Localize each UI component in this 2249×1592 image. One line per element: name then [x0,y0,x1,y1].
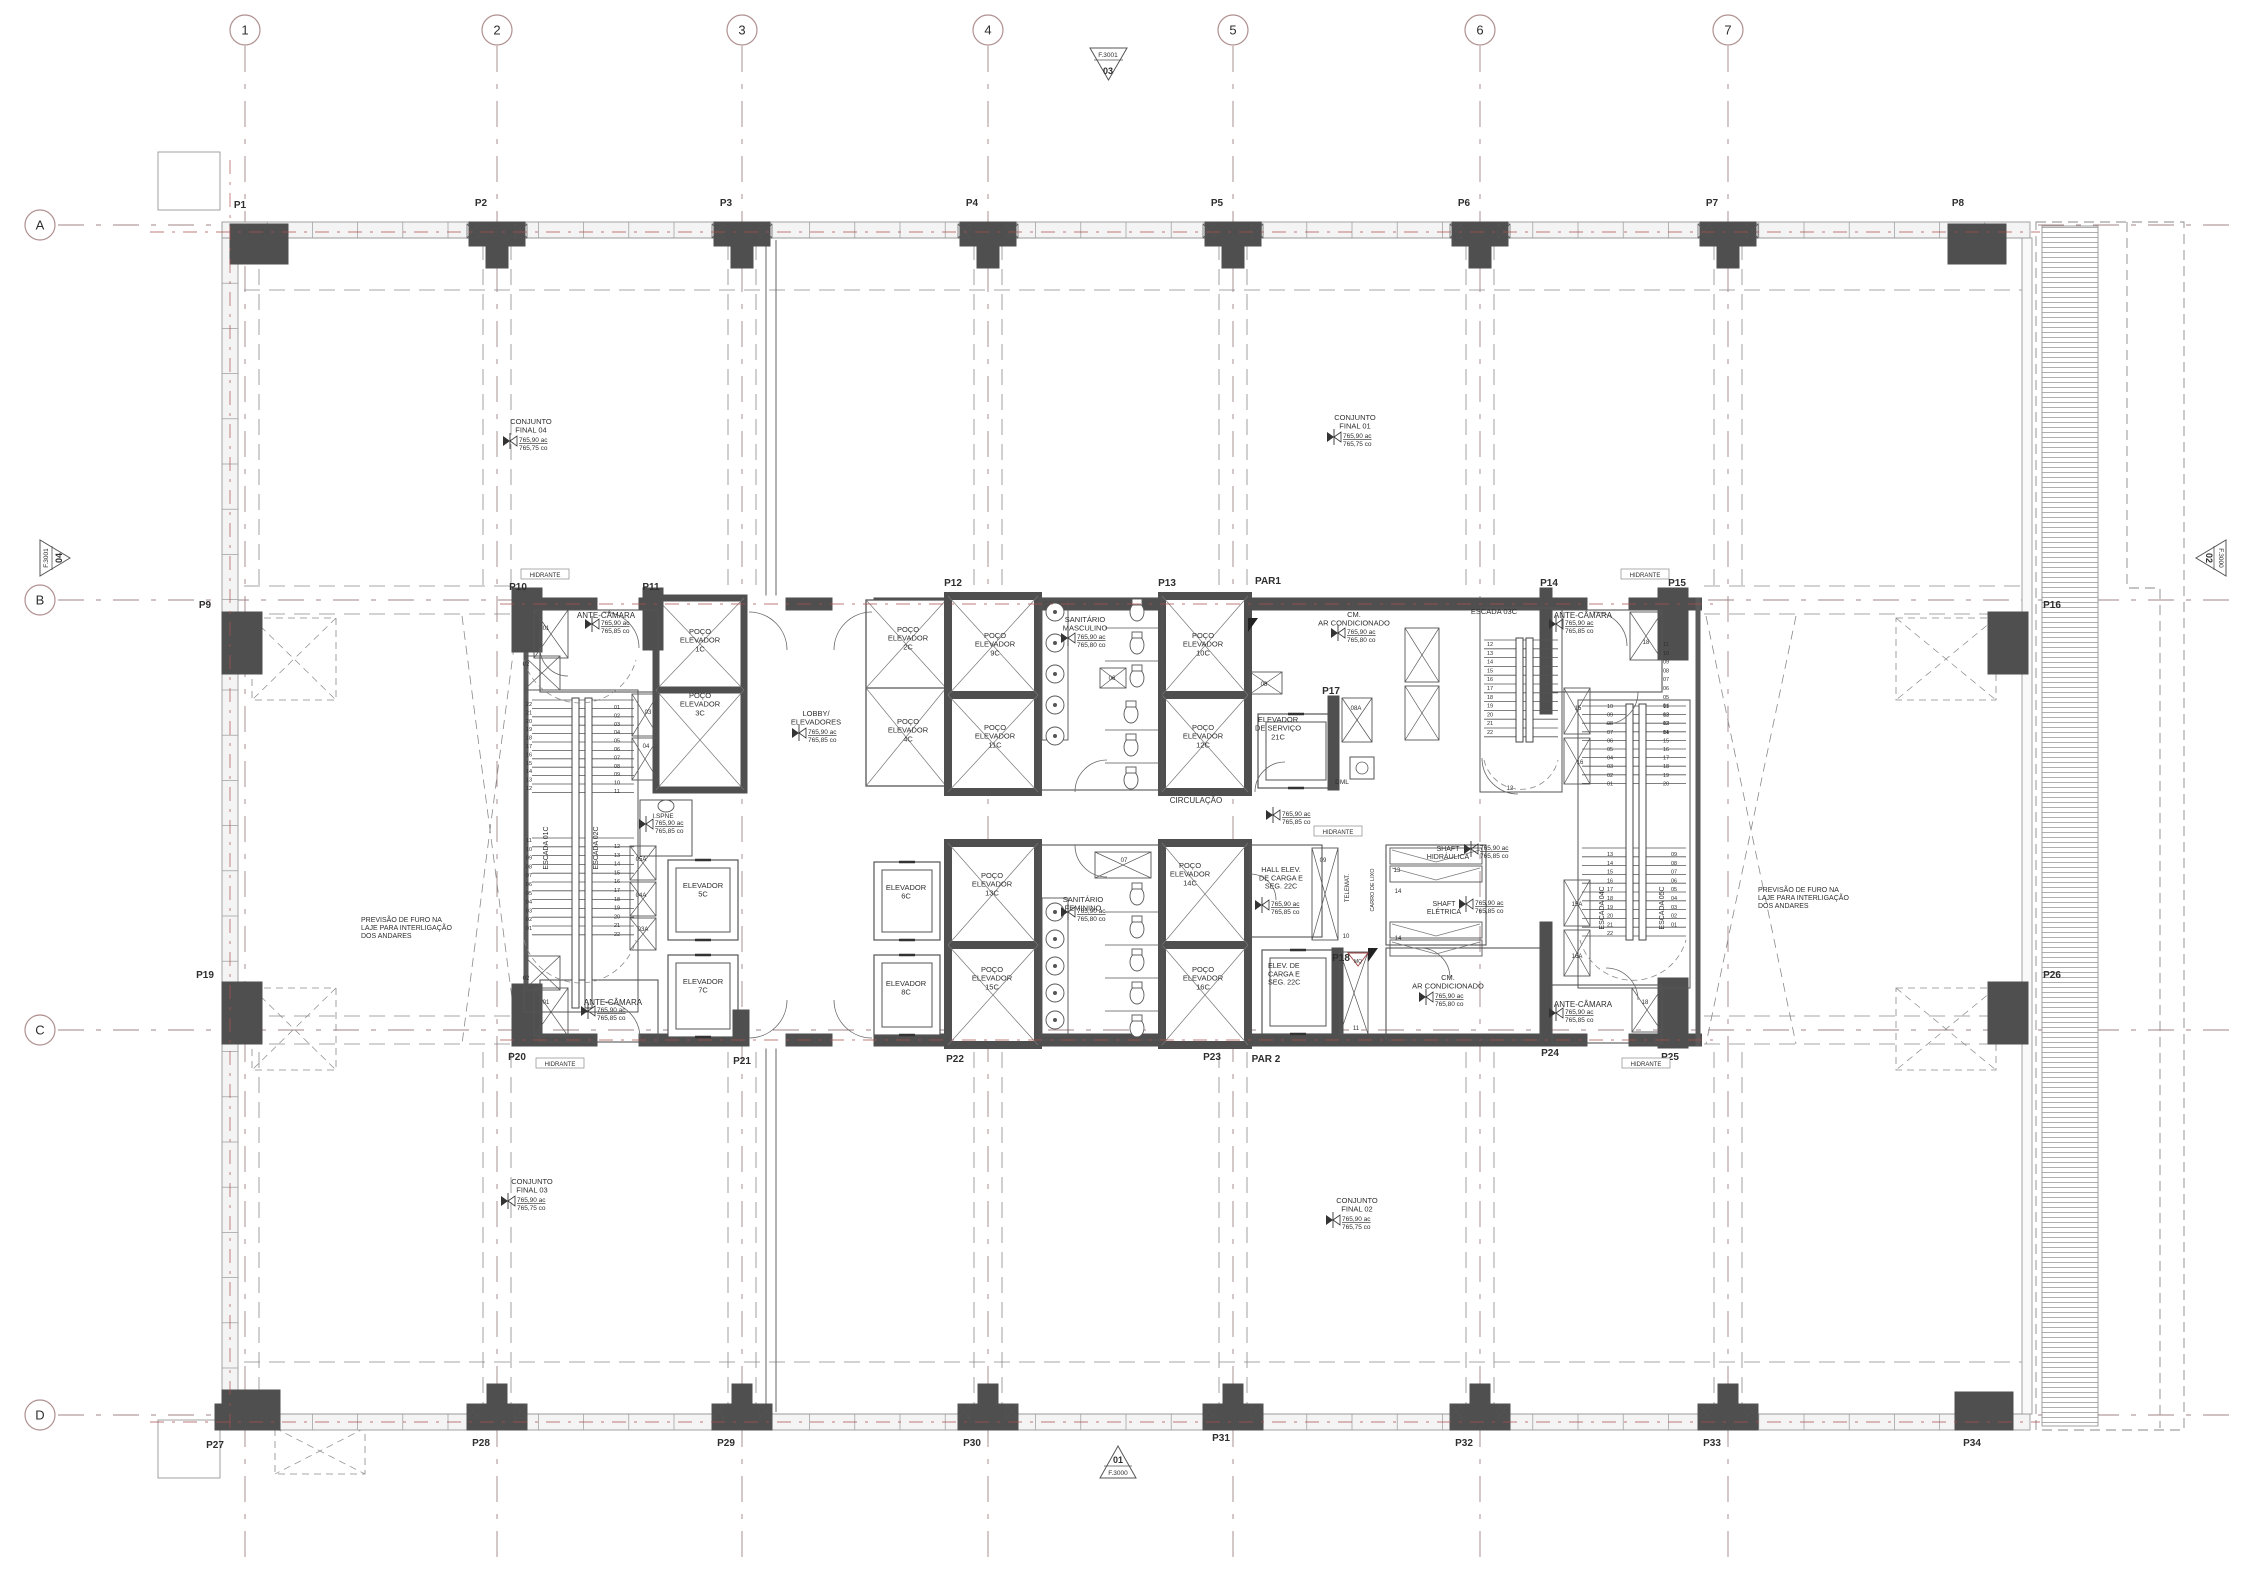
stair-tread-number: 13 [614,853,620,859]
plan-label: 08A [1351,706,1362,712]
level-value: 765,90 ac765,75 co [1342,1216,1371,1231]
plan-label: P7 [1706,198,1719,209]
plan-label: TELEMAT. [1345,874,1351,903]
plan-label: P14 [1540,578,1558,589]
stair-tread-number: 01 [1607,781,1613,787]
stair-tread-number: 16 [1607,878,1613,884]
stair-tread-number: 10 [1663,651,1669,657]
plan-label: 12 [1507,786,1514,792]
grid-bubble-col: 7 [1724,23,1731,38]
level-value: 765,90 ac765,85 co [808,729,837,744]
plan-label: P17 [1322,686,1340,697]
stair-tread-number: 09 [614,772,620,778]
plan-label: CARRO DE LIXO [1370,868,1376,912]
stair-tread-number: 17 [614,888,620,894]
plan-label: HIDRANTE [1630,573,1661,579]
stair-tread-number: 05 [1663,695,1669,701]
plan-label: P1 [234,200,247,211]
stair-tread-number: 07 [1663,677,1669,683]
stair-tread-number: 08 [1607,721,1613,727]
stair-tread-number: 12 [526,786,532,792]
stair-tread-number: 09 [526,856,532,862]
stair-tread-number: 18 [1607,896,1613,902]
stair-tread-number: 02 [526,917,532,923]
plan-label: P3 [720,198,733,209]
stair-tread-number: 18 [1487,695,1493,701]
level-marker-icon [1327,429,1341,445]
stair-tread-number: 12 [1663,713,1669,719]
grid-bubble-col: 2 [493,23,500,38]
plan-label: 18 [1642,1000,1649,1006]
plan-label: ELEV. DECARGA ESEG. 22C [1268,961,1300,987]
terrace-layer [2036,222,2184,1430]
stair-tread-number: 06 [1671,878,1677,884]
stair-tread-number: 19 [1487,704,1493,710]
grid-bubble-col: 6 [1476,23,1483,38]
grid-bubble-col: 5 [1229,23,1236,38]
plan-label: 07 [1121,858,1128,864]
plan-label: DML [1335,779,1349,786]
stair-tread-number: 15 [614,870,620,876]
plan-label: P30 [963,1438,981,1449]
plan-label: P27 [206,1440,224,1451]
plan-label: 09 [1320,858,1327,864]
ref-marker-right-sheet: F.3000 [2217,548,2224,568]
stair-tread-number: 09 [1663,660,1669,666]
stair-tread-number: 22 [614,932,620,938]
grid-bubble-col: 4 [984,23,991,38]
stair-tread-number: 21 [1607,922,1613,928]
stair-tread-number: 20 [1487,712,1493,718]
plan-label: 16 [1577,760,1584,766]
plan-label: P16 [2043,600,2061,611]
level-symbols-layer: 765,90 ac765,75 co765,90 ac765,75 co765,… [501,429,1594,1231]
stair-tread-number: 14 [1487,660,1493,666]
plan-label: MQ [1354,959,1362,965]
plan-label: P26 [2043,970,2061,981]
level-value: 765,90 ac765,85 co [1475,900,1504,915]
stair-tread-number: 20 [1663,781,1669,787]
axis-red-layer [150,160,2040,1430]
plan-label: ANTE-CÂMARA [584,998,643,1007]
plan-label: 04 [643,744,650,750]
stair-tread-number: 12 [1487,642,1493,648]
plan-label: P18 [1332,953,1350,964]
plan-label: P20 [508,1052,526,1063]
level-value: 765,90 ac765,85 co [1565,1009,1594,1024]
plan-label: P34 [1963,1438,1981,1449]
plan-label: 14 [1395,889,1402,895]
stair-tread-number: 08 [614,764,620,770]
level-value: 765,90 ac765,80 co [1077,634,1106,649]
stair-tread-number: 19 [1663,773,1669,779]
plan-label: PAR1 [1255,576,1281,587]
plan-label: PREVISÃO DE FURO NALAJE PARA INTERLIGAÇÃ… [1758,885,1849,910]
plan-label: SHAFTELÉTRICA [1427,901,1462,916]
stair-tread-number: 19 [526,727,532,733]
stair-tread-number: 14 [1607,861,1613,867]
stair-tread-number: 03 [1671,905,1677,911]
plan-label: 01 [543,1000,550,1006]
ref-marker-left-num: 04 [54,553,64,563]
level-value: 765,90 ac765,85 co [597,1007,626,1022]
plan-label: CM.AR CONDICIONADO [1412,973,1484,991]
stair-tread-number: 11 [1663,704,1669,710]
plan-label: P4 [966,198,979,209]
plan-label: ESCADA 05C [1659,886,1666,929]
stair-tread-number: 09 [1671,852,1677,858]
ref-marker-left-sheet: F.3001 [43,548,50,568]
plan-label: 06 [1109,676,1116,682]
stair-tread-number: 15 [1663,738,1669,744]
level-marker-icon [1326,1212,1340,1228]
plan-label: ESCADA 03C [1471,607,1518,616]
level-marker-icon [501,1193,515,1209]
stair-tread-number: 22 [1487,730,1493,736]
stair-tread-number: 07 [1607,730,1613,736]
plan-label: LOBBY/ELEVADORES [791,709,841,727]
stair-tread-number: 11 [614,789,620,795]
stair-tread-number: 16 [614,879,620,885]
plan-label: P23 [1203,1052,1221,1063]
stair-tread-number: 08 [526,864,532,870]
stair-tread-number: 04 [1607,756,1613,762]
stair-tread-number: 16 [1663,747,1669,753]
grid-bubble-col: 3 [738,23,745,38]
stair-tread-number: 17 [1607,887,1613,893]
plan-label: 04A [636,893,647,899]
stair-tread-number: 03 [1607,764,1613,770]
stair-tread-number: 12 [614,844,620,850]
annotation-layer: P1P2P3P4P5P6P7P8P9P16P19P26P27P28P29P30P… [196,198,2061,1451]
plan-label: P12 [944,578,962,589]
plan-label: P13 [1158,578,1176,589]
stair-tread-number: 04 [526,900,532,906]
plan-label: 16A [1572,954,1583,960]
stair-tread-number: 07 [526,873,532,879]
plan-label: P15 [1668,578,1686,589]
plan-label: 05A [636,857,647,863]
slab-beam-layer [231,244,2028,1474]
plan-label: P6 [1458,198,1471,209]
stair-tread-number: 14 [1663,730,1669,736]
stair-tread-number: 06 [526,882,532,888]
plan-label: 15A [1572,902,1583,908]
level-value: 765,90 ac765,85 co [601,620,630,635]
stair-tread-number: 10 [614,781,620,787]
stair-tread-number: 20 [614,914,620,920]
stair-tread-number: 02 [1671,914,1677,920]
plan-label: ESCADA 04C [1599,886,1606,929]
ref-marker-top-sheet: F.3001 [1098,52,1118,59]
stair-tread-number: 18 [614,897,620,903]
stair-tread-number: 02 [1607,773,1613,779]
stair-tread-number: 06 [1607,738,1613,744]
level-value: 765,90 ac765,75 co [1343,433,1372,448]
stair-tread-number: 03 [526,908,532,914]
level-value: 765,90 ac765,85 co [1480,845,1509,860]
grid-bubble-row: B [36,593,45,608]
stair-tread-number: 20 [526,719,532,725]
plan-label: P32 [1455,1438,1473,1449]
plan-label: P9 [199,600,212,611]
stair-tread-number: 08 [1663,668,1669,674]
plan-label: CONJUNTOFINAL 04 [510,417,552,435]
plan-label: HALL ELEV.DE CARGA ESEG. 22C [1259,865,1303,891]
grid-layer [58,46,2240,1560]
grid-bubble-row: C [35,1023,44,1038]
plan-label: 01 [543,626,550,632]
stair-tread-number: 11 [526,838,532,844]
plan-label: P33 [1703,1438,1721,1449]
stair-tread-number: 20 [1607,914,1613,920]
stair-tread-number: 10 [526,847,532,853]
stair-tread-number: 22 [1607,931,1613,937]
stair-tread-number: 07 [614,755,620,761]
level-value: 765,90 ac765,85 co [1565,620,1594,635]
ref-marker-bottom-num: 01 [1113,1455,1123,1465]
fixtures-layer [1042,599,1162,1037]
plan-label: ANTE-CÂMARA [1554,611,1613,620]
level-value: 765,90 ac765,85 co [1282,811,1311,826]
stair-tread-number: 14 [614,862,620,868]
plan-label: CIRCULAÇÃO [1170,796,1222,805]
plan-label: SANITÁRIOMASCULINO [1063,615,1108,633]
plan-label: PREVISÃO DE FURO NALAJE PARA INTERLIGAÇÃ… [361,915,452,940]
plan-label: HIDRANTE [545,1062,576,1068]
plan-label: HIDRANTE [530,573,561,579]
plan-label: P28 [472,1438,490,1449]
floor-plan-canvas: 1234567ABCD F.30010301F.3000F.30010402F.… [0,0,2249,1592]
stair-tread-number: 13 [526,778,532,784]
plan-label: P31 [1212,1433,1230,1444]
plan-label: CM.AR CONDICIONADO [1318,610,1390,628]
stair-tread-number: 01 [614,705,620,711]
level-value: 765,90 ac765,75 co [519,437,548,452]
plan-label: 14 [1395,936,1402,942]
stair-tread-number: 13 [1487,651,1493,657]
stair-tread-number: 17 [526,744,532,750]
plan-label: CONJUNTOFINAL 02 [1336,1196,1378,1214]
plan-label: I.SPNE [652,813,674,820]
stair-tread-number: 04 [614,730,620,736]
stair-tread-number: 17 [1663,756,1669,762]
stair-tread-number: 17 [1487,686,1493,692]
stair-tread-number: 11 [1663,642,1669,648]
stair-tread-number: 02 [614,713,620,719]
ref-marker-top-num: 03 [1103,66,1113,76]
stair-tread-number: 07 [1671,870,1677,876]
stair-tread-number: 13 [1607,852,1613,858]
plan-label: P5 [1211,198,1224,209]
level-value: 765,90 ac765,75 co [517,1197,546,1212]
plan-label: 10 [1343,934,1350,940]
stair-tread-number: 16 [1487,677,1493,683]
grid-bubble-row: A [36,218,45,233]
level-value: 765,90 ac765,85 co [655,820,684,835]
plan-label: P2 [475,198,488,209]
stair-tread-number: 18 [1663,764,1669,770]
stair-tread-number: 21 [526,710,532,716]
plan-label: PAR 2 [1252,1054,1281,1065]
plan-label: 03A [638,927,649,933]
plan-label: 13 [1394,868,1401,874]
plan-label: P24 [1541,1048,1559,1059]
grid-bubble-row: D [35,1408,44,1423]
plan-label: HIDRANTE [1631,1062,1662,1068]
level-value: 765,90 ac765,80 co [1435,993,1464,1008]
plan-label: P8 [1952,198,1965,209]
stair-tread-number: 06 [614,747,620,753]
plan-label: P19 [196,970,214,981]
plan-label: HIDRANTE [1323,830,1354,836]
level-value: 765,90 ac765,85 co [1271,901,1300,916]
plan-label: ANTE-CÂMARA [577,611,636,620]
plan-label: ANTE-CÂMARA [1554,1000,1613,1009]
stair-tread-number: 16 [526,752,532,758]
stair-tread-number: 05 [614,739,620,745]
stair-tread-number: 13 [1663,721,1669,727]
plan-label: 08 [1261,682,1268,688]
stair-tread-number: 21 [1487,721,1493,727]
stair-tread-number: 10 [1607,704,1613,710]
stair-tread-number: 22 [526,702,532,708]
stair-tread-number: 08 [1671,861,1677,867]
stair-tread-number: 05 [526,891,532,897]
stair-tread-number: 04 [1671,896,1677,902]
plan-label: P10 [509,582,527,593]
stair-tread-number: 14 [526,769,532,775]
level-marker-icon [639,816,653,832]
stair-tread-number: 21 [614,923,620,929]
plan-label: P22 [946,1054,964,1065]
level-value: 765,90 ac765,80 co [1347,629,1376,644]
facade-layer [158,152,2032,1478]
plan-label: 02 [523,662,530,668]
plan-label: SANITÁRIOFEMININO [1063,895,1104,913]
plan-label: 15 [1575,706,1582,712]
stair-tread-number: 15 [1607,870,1613,876]
ref-marker-bottom-sheet: F.3000 [1108,1470,1128,1477]
stair-tread-number: 15 [526,761,532,767]
plan-label: 02 [523,976,530,982]
plan-label: 18 [1643,640,1650,646]
stair-tread-number: 03 [614,722,620,728]
plan-label: 11 [1353,1026,1360,1032]
plan-label: ESCADA 02C [593,826,600,869]
level-marker-icon [792,725,806,741]
plan-label: P21 [733,1056,751,1067]
ref-marker-right-num: 02 [2204,553,2214,563]
stair-tread-number: 01 [526,926,532,932]
level-marker-icon [1419,989,1433,1005]
stair-tread-number: 05 [1671,887,1677,893]
stair-tread-number: 09 [1607,713,1613,719]
stair-tread-number: 06 [1663,686,1669,692]
plan-label: 03 [645,710,652,716]
level-marker-icon [1255,897,1269,913]
stair-tread-number: 01 [1671,922,1677,928]
plan-label: ESCADA 01C [543,826,550,869]
stair-tread-number: 19 [614,906,620,912]
floor-plan-page: 1234567ABCD F.30010301F.3000F.30010402F.… [0,0,2249,1592]
grid-bubble-col: 1 [241,23,248,38]
level-marker-icon [503,433,517,449]
plan-label: P11 [642,582,660,593]
plan-label: CONJUNTOFINAL 01 [1334,413,1376,431]
stair-tread-number: 05 [1607,747,1613,753]
plan-label: P29 [717,1438,735,1449]
stair-tread-number: 18 [526,736,532,742]
stair-tread-number: 19 [1607,905,1613,911]
level-marker-icon [1266,807,1280,823]
stair-tread-number: 15 [1487,668,1493,674]
plan-label: CONJUNTOFINAL 03 [511,1177,553,1195]
